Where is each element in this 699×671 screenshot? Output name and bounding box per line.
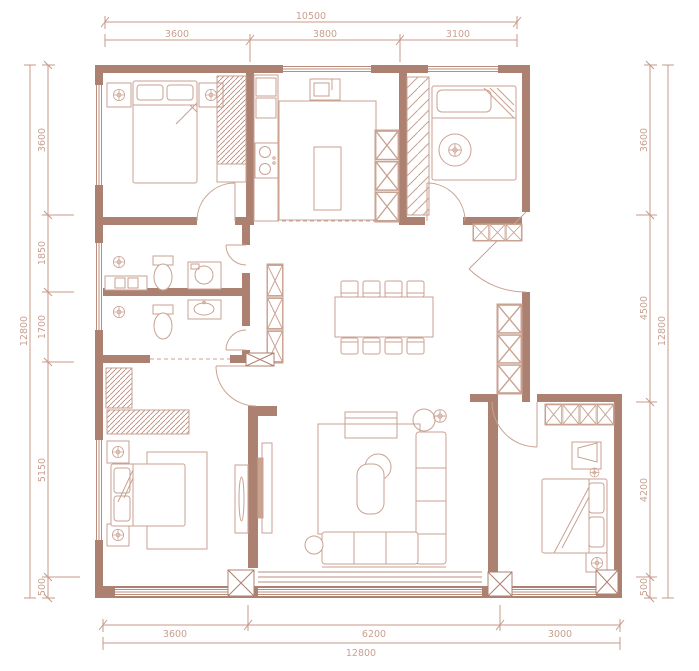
dim-right-seg1: 3600 (639, 128, 650, 152)
bedroom2-door (427, 183, 465, 221)
toilet (153, 256, 173, 290)
dim-bottom-seg2: 6200 (362, 629, 386, 640)
cabinet-x (267, 264, 283, 363)
dim-top-seg3: 3100 (446, 29, 470, 40)
tv-console (258, 443, 272, 533)
desk (572, 442, 601, 469)
table-icon (449, 144, 462, 157)
cabinet-x (473, 224, 522, 241)
bath2-door (226, 330, 246, 350)
coffee-table (357, 454, 391, 514)
shower-icon (113, 306, 124, 317)
wardrobe (106, 368, 132, 408)
dresser (107, 410, 189, 434)
lamp-icon (112, 446, 123, 457)
floor-plan-svg: 10500 3600 3800 3100 3600 6200 3000 1280… (0, 0, 699, 671)
sideboard (345, 412, 397, 438)
tall-cabinet (375, 130, 399, 222)
wardrobe-x (545, 404, 614, 425)
washer (188, 262, 221, 289)
bedroom1-door (197, 183, 235, 221)
bedroom3-door (216, 366, 256, 406)
dim-top-seg1: 3600 (165, 29, 189, 40)
plant-icon (590, 468, 599, 477)
dim-right-seg3: 4200 (639, 478, 650, 502)
dim-bottom (99, 605, 624, 650)
lamp-icon (113, 89, 124, 100)
toilet (153, 305, 173, 339)
dim-left-seg4: 5150 (37, 458, 48, 482)
bathroom1 (105, 256, 221, 290)
bathroom2 (113, 300, 221, 339)
shower-icon (113, 256, 124, 267)
lamp-icon (112, 529, 123, 540)
dining-area (335, 281, 433, 354)
dim-bottom-seg1: 3600 (163, 629, 187, 640)
dim-top-seg2: 3800 (313, 29, 337, 40)
lamp-icon (205, 89, 216, 100)
floor-lamp (305, 536, 323, 554)
dim-bottom-total: 12800 (346, 648, 376, 659)
dining-table (335, 297, 433, 337)
dim-left-seg3: 1700 (37, 315, 48, 339)
dim-left-total: 12800 (19, 316, 30, 346)
bedroom2 (407, 77, 516, 215)
dim-right-seg2: 4500 (639, 296, 650, 320)
dim-left-seg2: 1850 (37, 241, 48, 265)
dim-left (24, 61, 80, 602)
living-room (258, 409, 446, 567)
bedroom3 (106, 368, 248, 549)
dim-right-total: 12800 (657, 316, 668, 346)
island (279, 101, 376, 220)
lamp-icon (591, 557, 602, 568)
bedroom4 (542, 404, 614, 572)
wardrobe (217, 76, 246, 164)
mirror-cabinet (235, 465, 248, 533)
dim-bottom-seg3: 3000 (548, 629, 572, 640)
dim-left-seg1: 3600 (37, 128, 48, 152)
bath1-door (226, 245, 246, 265)
furniture (105, 75, 618, 596)
cooktop (255, 143, 278, 178)
bedroom1 (107, 76, 246, 183)
shoe-cabinet-x (497, 304, 522, 394)
plant-icon (434, 410, 447, 423)
floor-plan-canvas: 10500 3600 3800 3100 3600 6200 3000 1280… (0, 0, 699, 671)
bedroom4-door (492, 402, 537, 447)
dim-left-seg5: 500 (37, 578, 48, 596)
dim-right-seg4: 500 (639, 578, 650, 596)
side-table (413, 409, 435, 431)
dim-top-total: 10500 (296, 11, 326, 22)
sink (188, 300, 221, 319)
wardrobe (407, 77, 429, 215)
kitchen (254, 75, 399, 222)
